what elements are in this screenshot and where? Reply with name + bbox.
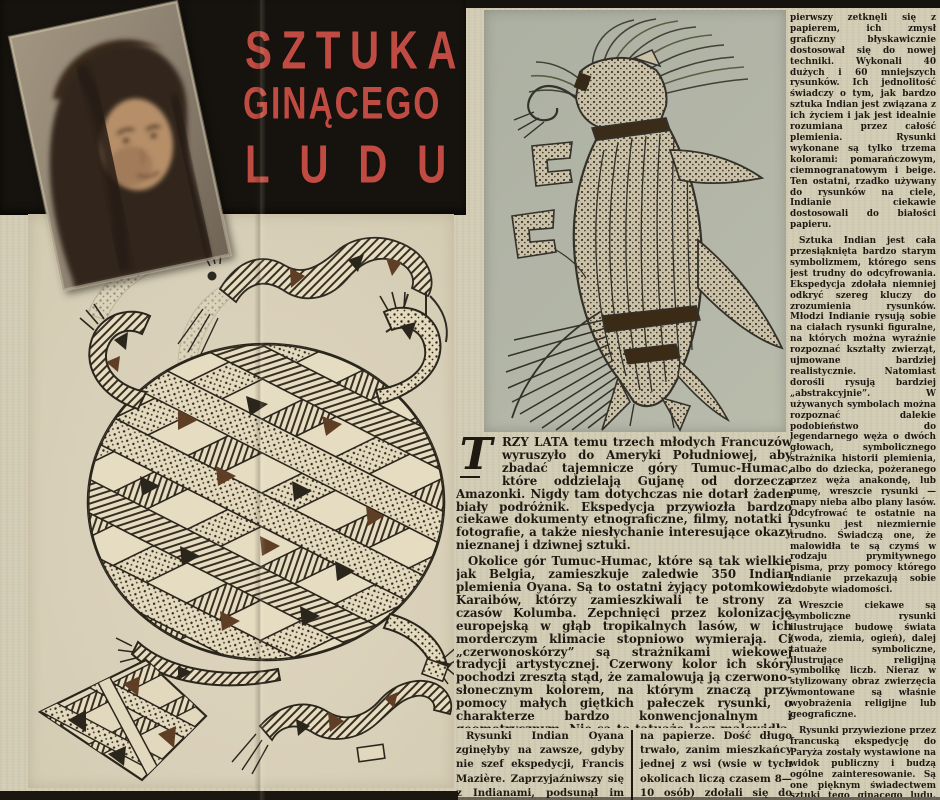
article-text: Rysunki przywiezione przez francuską eks…: [790, 726, 936, 797]
article-text: na papierze. Dość długo trwało, zanim mi…: [640, 729, 792, 800]
drop-cap: T: [456, 437, 496, 475]
magazine-title-line: LUDU: [245, 134, 476, 195]
column-divider: [631, 730, 633, 800]
magazine-page: { "masthead": { "title_lines": ["SZTUKA"…: [0, 0, 940, 800]
bottom-page-edge-shadow: [0, 791, 458, 800]
magazine-title-line: SZTUKA: [245, 20, 466, 81]
bottom-column-right: na papierze. Dość długo trwało, zanim mi…: [640, 729, 792, 800]
main-article: TRZY LATA temu trzech młodych Francuzów …: [456, 436, 792, 728]
turtle-drawing-artwork: [28, 214, 454, 788]
bird-drawing-artwork: [484, 10, 786, 432]
article-text: pierwszy zetknęli się z papierem, ich zm…: [790, 13, 936, 231]
bottom-columns: Rysunki Indian Oyana zginęłyby na zawsze…: [456, 729, 794, 800]
article-paragraph: Okolice gór Tumuc-Humac, które są tak wi…: [456, 555, 792, 728]
bottom-column-left: Rysunki Indian Oyana zginęłyby na zawsze…: [456, 729, 624, 800]
article-text: Rysunki Indian Oyana zginęłyby na zawsze…: [456, 729, 624, 800]
article-text: temu trzech młodych Francuzów wyruszyło …: [456, 436, 792, 552]
article-text: Sztuka Indian jest cała przesiąknięta ba…: [790, 236, 936, 596]
right-column: pierwszy zetknęli się z papierem, ich zm…: [790, 13, 936, 797]
magazine-title-line: GINĄCEGO: [243, 78, 441, 130]
article-text: Wreszcie ciekawe są symboliczne rysunki …: [790, 601, 936, 721]
article-paragraph: TRZY LATA temu trzech młodych Francuzów …: [456, 436, 792, 552]
